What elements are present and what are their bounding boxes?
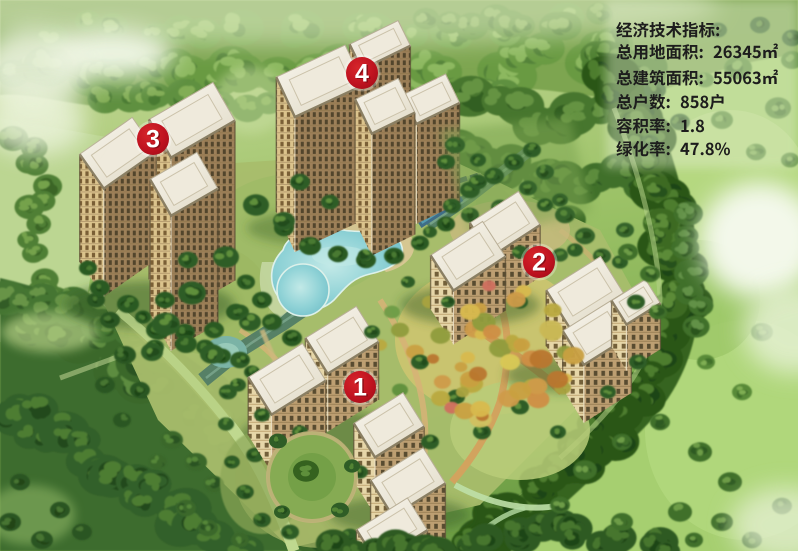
svg-text:4: 4 [355,60,369,88]
svg-text:2: 2 [532,249,546,277]
svg-text:1: 1 [353,374,367,402]
svg-text:3: 3 [146,126,160,154]
